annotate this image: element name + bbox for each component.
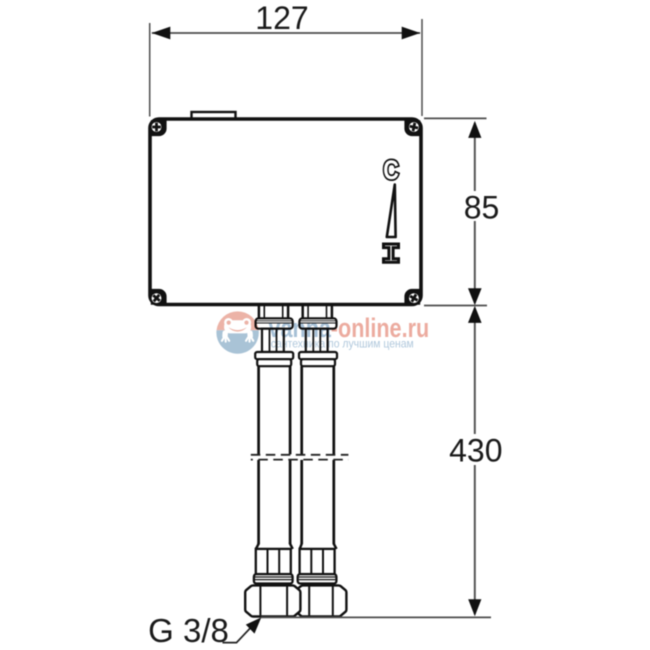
svg-text:C: C [383,156,399,186]
svg-text:сантехника по лучшим ценам: сантехника по лучшим ценам [271,338,414,351]
svg-text:85: 85 [464,189,500,225]
svg-text:G 3/8: G 3/8 [148,612,229,649]
svg-text:127: 127 [255,0,308,36]
svg-text:430: 430 [449,433,502,469]
